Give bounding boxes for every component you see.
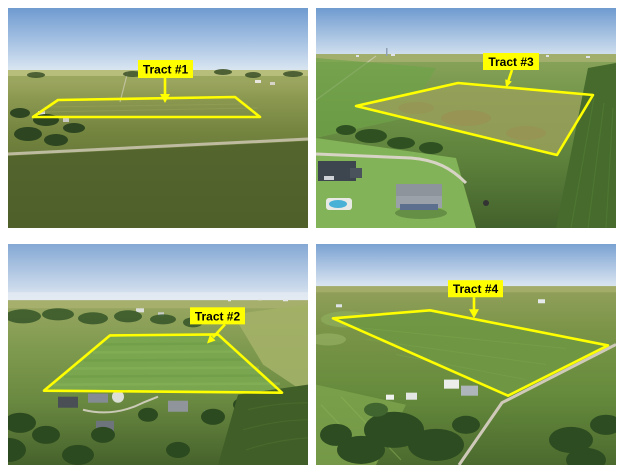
tract-label-text: Tract #2 <box>195 309 241 323</box>
aerial-photo-tract-4: Tract #4 <box>316 244 616 465</box>
foreground-field <box>8 141 308 228</box>
sky <box>316 8 616 58</box>
tract-label-text: Tract #1 <box>143 63 189 77</box>
aerial-photo-tract-1: Tract #1 <box>8 8 308 228</box>
aerial-photo-collage: Tract #1 <box>0 0 624 473</box>
aerial-photo-tract-3: Tract #3 <box>316 8 616 228</box>
tract-label-text: Tract #3 <box>488 55 534 69</box>
aerial-photo-tract-2: Tract #2 <box>8 244 308 465</box>
swimming-pool <box>329 200 347 208</box>
tract-label-text: Tract #4 <box>453 282 499 296</box>
